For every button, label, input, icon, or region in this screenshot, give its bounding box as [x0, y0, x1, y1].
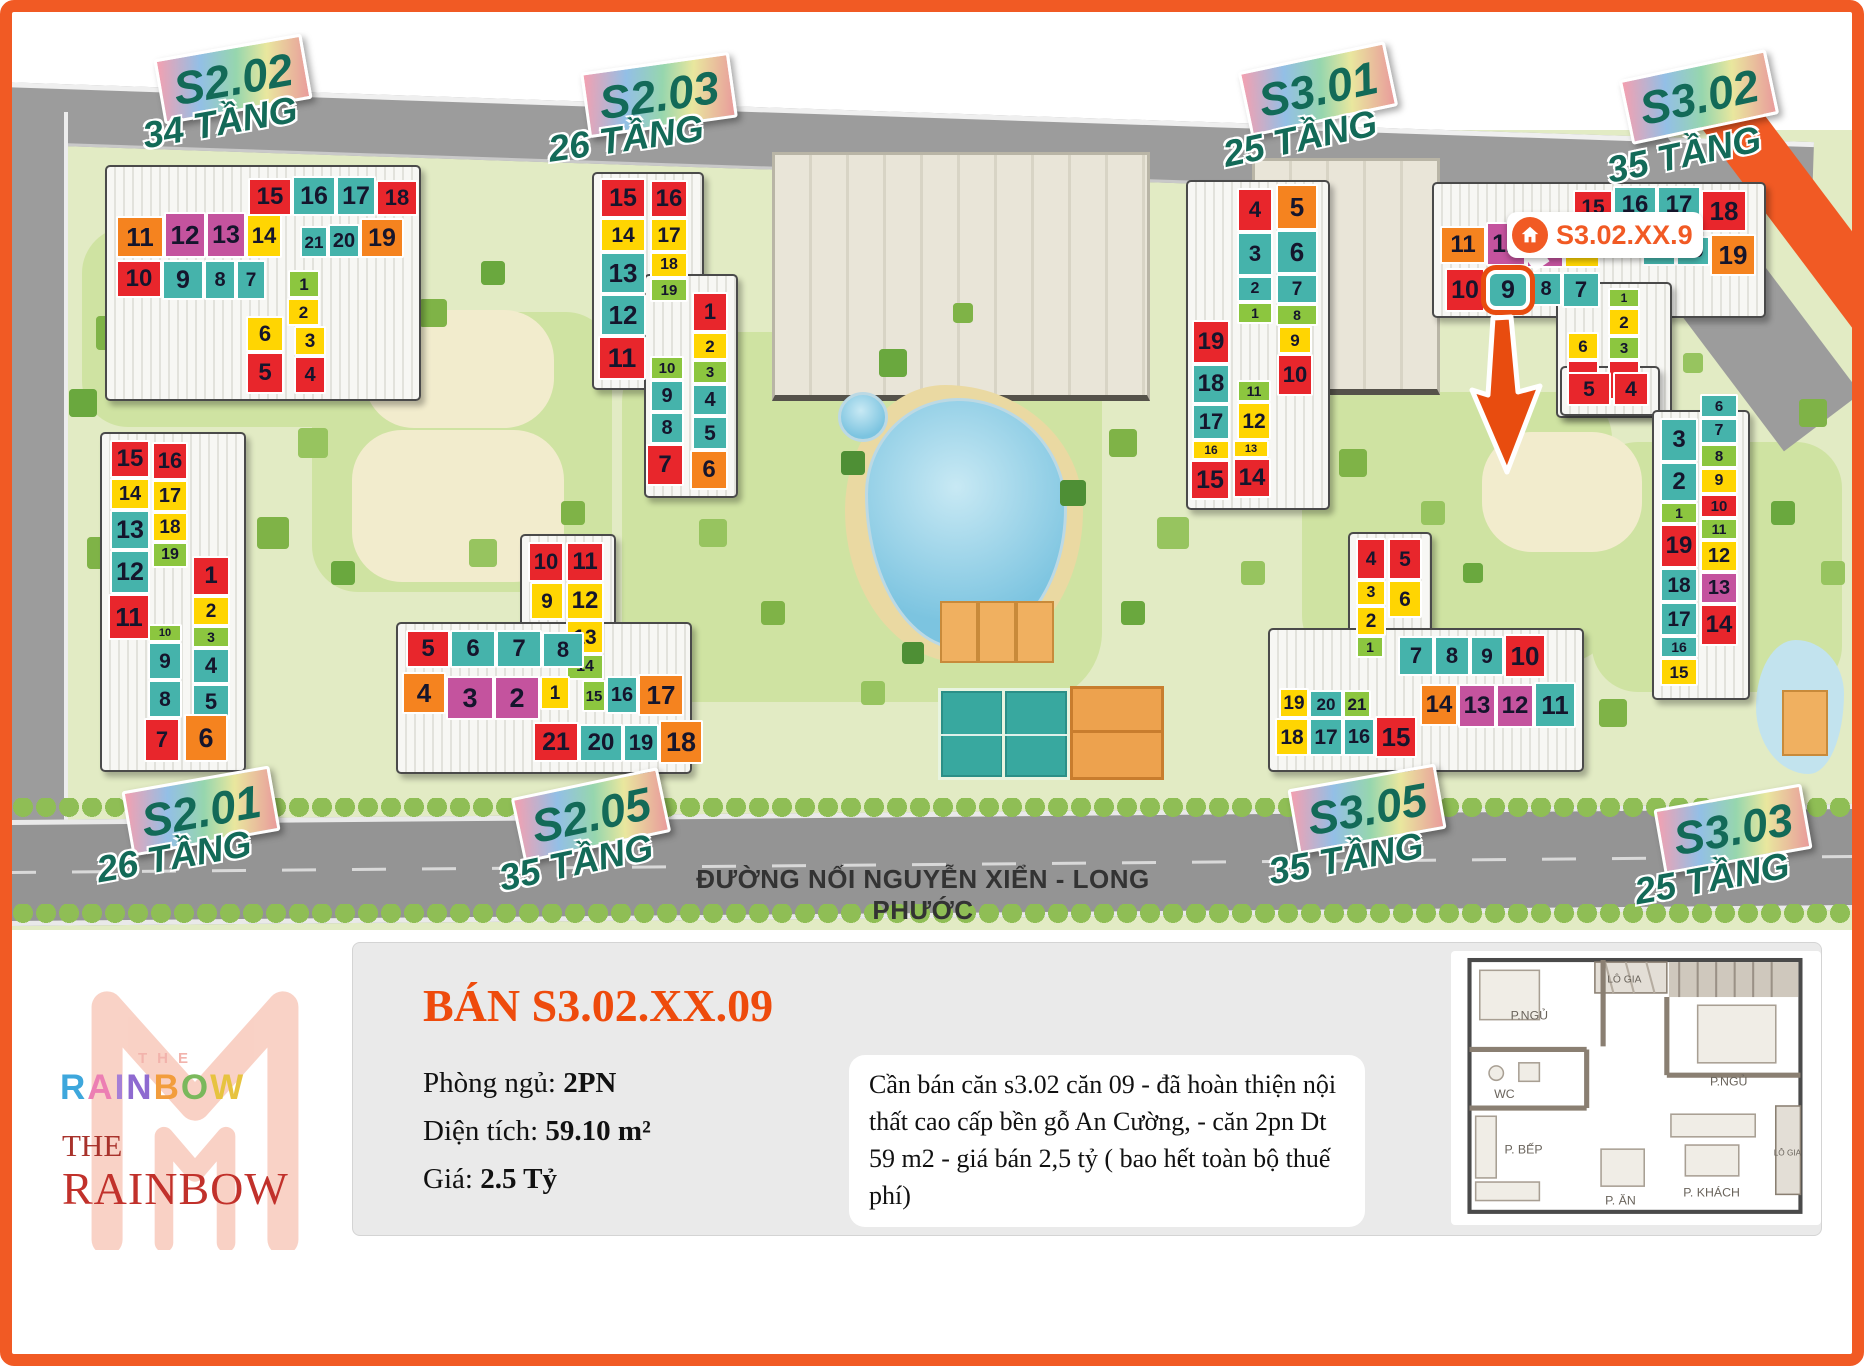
bedrooms-row: Phòng ngủ: 2PN	[423, 1067, 616, 1100]
unit-cell-S3.01-16: 16	[1192, 440, 1230, 460]
logo-rainbow-serif: RAINBOW	[62, 1162, 289, 1215]
building-floors-S2.03: 26 TẦNG	[546, 107, 707, 170]
unit-cell-S2.05-3: 3	[446, 676, 494, 720]
unit-cell-S3.03-12: 12	[1700, 540, 1738, 572]
listing-description: Cần bán căn s3.02 căn 09 - đã hoàn thiện…	[849, 1055, 1365, 1227]
unit-cell-S3.05-19: 19	[1279, 688, 1309, 718]
unit-cell-S3.01-15: 15	[1190, 460, 1230, 500]
unit-cell-S3.02-11: 11	[1440, 226, 1486, 264]
unit-cell-S2.03-1: 1	[692, 292, 728, 332]
unit-cell-S3.05-10: 10	[1504, 634, 1546, 678]
unit-cell-S3.03-16: 16	[1660, 636, 1698, 658]
unit-cell-S2.02-2: 2	[287, 298, 320, 326]
unit-cell-S3.05-8: 8	[1434, 636, 1470, 676]
unit-cell-S3.01-8: 8	[1276, 304, 1318, 326]
unit-cell-S2.01-19: 19	[152, 542, 188, 568]
unit-cell-S2.05-1: 1	[540, 676, 570, 710]
unit-cell-S2.01-2: 2	[192, 596, 230, 626]
unit-cell-S2.01-17: 17	[152, 480, 188, 512]
unit-cell-S2.03-14: 14	[600, 218, 646, 252]
unit-cell-S3.02-1: 1	[1608, 288, 1640, 308]
unit-cell-S3.01-17: 17	[1192, 404, 1230, 440]
unit-cell-S3.01-1: 1	[1237, 302, 1273, 324]
unit-cell-S3.01-14: 14	[1233, 458, 1271, 498]
unit-cell-S3.01-18: 18	[1192, 364, 1230, 404]
unit-cell-S3.03-17: 17	[1660, 602, 1698, 636]
room-label-balcony-top: LÔ GIA	[1607, 973, 1641, 986]
unit-cell-S2.02-11: 11	[116, 216, 164, 258]
unit-cell-S2.05-19: 19	[623, 724, 659, 762]
unit-cell-S2.03-2: 2	[692, 332, 728, 360]
logo-the-small: THE	[138, 1050, 198, 1067]
unit-cell-S2.01-11: 11	[108, 594, 150, 640]
unit-cell-S2.05-8: 8	[542, 632, 584, 668]
unit-cell-S2.01-13: 13	[110, 510, 150, 550]
unit-cell-S3.01-2: 2	[1237, 276, 1273, 302]
unit-cell-S3.05-5: 5	[1388, 538, 1422, 580]
buildings-layer: 151617181112131421201910987126534S2.0234…	[12, 12, 1852, 932]
unit-cell-S3.02-18: 18	[1701, 190, 1747, 232]
unit-cell-S3.02-2: 2	[1608, 308, 1640, 336]
unit-cell-S3.02-3: 3	[1608, 336, 1640, 360]
unit-cell-S2.03-11: 11	[598, 336, 646, 380]
unit-cell-S3.03-7: 7	[1700, 418, 1738, 444]
unit-cell-S3.01-19: 19	[1192, 320, 1230, 364]
unit-cell-S2.01-7: 7	[144, 718, 180, 762]
logo-the-serif: THE	[62, 1128, 122, 1164]
home-icon	[1512, 217, 1548, 253]
unit-cell-S2.03-18: 18	[650, 252, 688, 278]
unit-cell-S3.05-1: 1	[1356, 636, 1384, 658]
unit-cell-S3.01-13: 13	[1233, 440, 1269, 458]
unit-cell-S3.05-14: 14	[1420, 684, 1458, 726]
unit-cell-S3.03-13: 13	[1700, 572, 1738, 604]
unit-cell-S2.05-2: 2	[494, 676, 540, 720]
unit-cell-S3.01-7: 7	[1276, 274, 1318, 304]
room-label-bedroom-right: P.NGỦ	[1710, 1073, 1747, 1088]
unit-cell-S2.03-6: 6	[690, 450, 728, 490]
room-label-dining: P. ĂN	[1605, 1193, 1636, 1208]
unit-cell-S3.01-5: 5	[1276, 184, 1318, 230]
unit-cell-S3.01-10: 10	[1277, 354, 1313, 396]
unit-cell-S2.02-8: 8	[204, 260, 236, 300]
callout-label: S3.02.XX.9	[1556, 220, 1693, 251]
unit-cell-S3.03-19: 19	[1660, 524, 1698, 568]
unit-cell-S2.02-14: 14	[246, 214, 282, 258]
unit-cell-S3.05-18: 18	[1275, 718, 1309, 756]
unit-cell-S2.01-6: 6	[184, 714, 228, 762]
price-row: Giá: 2.5 Tỷ	[423, 1163, 557, 1196]
unit-cell-S3.05-16: 16	[1343, 718, 1375, 756]
unit-cell-S3.02-10: 10	[1445, 268, 1485, 312]
unit-cell-S2.02-5: 5	[246, 352, 284, 394]
unit-cell-S2.02-20: 20	[328, 224, 360, 258]
unit-cell-S2.03-8: 8	[650, 412, 684, 444]
unit-cell-S3.02-6: 6	[1567, 332, 1599, 360]
unit-cell-S2.02-12: 12	[164, 212, 206, 258]
unit-cell-S2.05-17: 17	[638, 674, 684, 716]
unit-cell-S2.03-19: 19	[650, 278, 688, 302]
unit-cell-S2.02-7: 7	[236, 260, 266, 300]
unit-cell-S2.02-17: 17	[336, 176, 376, 216]
site-map: ĐƯỜNG NỐI NGUYỄN XIỂN - LONG PHƯỚC 15161…	[12, 12, 1852, 932]
unit-cell-S3.03-3: 3	[1660, 418, 1698, 462]
brand-logo: THE RAINBOW THE RAINBOW	[60, 950, 350, 1250]
unit-cell-S3.03-4: 4	[1613, 372, 1649, 406]
unit-cell-S2.05-15: 15	[582, 680, 606, 712]
unit-cell-S3.03-8: 8	[1700, 444, 1738, 468]
unit-cell-S2.02-19: 19	[360, 218, 404, 258]
unit-cell-S3.03-15: 15	[1660, 658, 1698, 686]
area-value: 59.10 m²	[545, 1115, 650, 1147]
unit-cell-S3.05-11: 11	[1534, 682, 1576, 728]
unit-cell-S2.03-3: 3	[692, 360, 728, 384]
unit-cell-S3.03-11: 11	[1700, 518, 1738, 540]
unit-cell-S3.01-11: 11	[1237, 380, 1271, 402]
unit-cell-S2.05-6: 6	[450, 630, 496, 668]
unit-cell-S2.02-3: 3	[294, 326, 326, 356]
unit-cell-S3.02-8: 8	[1530, 272, 1562, 306]
room-label-balcony-right: LÔ GIA	[1774, 1147, 1802, 1157]
price-label: Giá:	[423, 1163, 480, 1195]
listing-panel: BÁN S3.02.XX.09 Phòng ngủ: 2PN Diện tích…	[352, 942, 1822, 1236]
area-label: Diện tích:	[423, 1115, 545, 1147]
unit-cell-S2.03-13: 13	[600, 252, 646, 294]
selected-unit-S3.02-9[interactable]: 9	[1486, 270, 1530, 310]
logo-letter: A	[87, 1068, 114, 1107]
page: ĐƯỜNG NỐI NGUYỄN XIỂN - LONG PHƯỚC 15161…	[0, 0, 1864, 1366]
logo-rainbow-colored: RAINBOW	[60, 1068, 245, 1108]
unit-cell-S3.05-9: 9	[1470, 636, 1504, 676]
logo-letter: R	[60, 1068, 87, 1107]
unit-cell-S2.02-1: 1	[288, 270, 320, 298]
unit-cell-S2.05-21: 21	[533, 722, 579, 762]
unit-cell-S3.03-9: 9	[1700, 468, 1738, 494]
logo-letter: B	[154, 1068, 181, 1107]
unit-cell-S3.01-3: 3	[1237, 232, 1273, 276]
floor-plan: P.NGỦ LÔ GIA P.NGỦ WC P. BẾP P. ĂN P. KH…	[1451, 951, 1821, 1225]
unit-cell-S2.01-18: 18	[152, 512, 188, 542]
unit-cell-S2.05-16: 16	[606, 676, 638, 714]
unit-cell-S2.02-15: 15	[248, 178, 292, 216]
unit-cell-S2.05-11: 11	[566, 542, 604, 582]
unit-cell-S3.05-4: 4	[1356, 538, 1386, 580]
price-value: 2.5 Tỷ	[480, 1163, 557, 1195]
unit-cell-S3.02-7: 7	[1562, 272, 1600, 308]
unit-cell-S2.01-8: 8	[148, 680, 182, 718]
unit-cell-S2.05-10: 10	[528, 542, 564, 582]
unit-cell-S3.03-14: 14	[1700, 604, 1738, 646]
unit-cell-S3.03-10: 10	[1700, 494, 1738, 518]
unit-cell-S2.05-20: 20	[579, 724, 623, 762]
unit-cell-S2.03-7: 7	[646, 444, 684, 486]
unit-cell-S3.05-7: 7	[1398, 636, 1434, 676]
bedrooms-label: Phòng ngủ:	[423, 1067, 563, 1099]
room-label-living: P. KHÁCH	[1683, 1184, 1740, 1199]
unit-cell-S3.05-12: 12	[1496, 684, 1534, 728]
unit-cell-S3.01-12: 12	[1237, 402, 1271, 440]
unit-cell-S2.05-12: 12	[566, 582, 604, 620]
room-label-bedroom-top: P.NGỦ	[1511, 1008, 1548, 1023]
unit-cell-S3.05-13: 13	[1458, 684, 1496, 728]
unit-cell-S2.02-18: 18	[376, 180, 418, 216]
unit-cell-S2.01-3: 3	[192, 626, 230, 648]
unit-cell-S2.01-14: 14	[110, 478, 150, 510]
unit-cell-S3.01-9: 9	[1278, 326, 1312, 354]
map-pin-callout[interactable]: S3.02.XX.9	[1507, 212, 1703, 258]
unit-cell-S2.05-18: 18	[659, 720, 703, 764]
unit-cell-S3.01-6: 6	[1276, 230, 1318, 274]
unit-cell-S2.01-9: 9	[148, 642, 182, 680]
unit-cell-S2.02-4: 4	[294, 356, 326, 394]
logo-letter: W	[210, 1068, 245, 1107]
unit-cell-S2.03-4: 4	[692, 384, 728, 416]
unit-cell-S3.05-3: 3	[1356, 580, 1386, 606]
hedge-row	[12, 798, 1852, 818]
unit-cell-S3.05-21: 21	[1343, 690, 1371, 718]
unit-cell-S2.01-12: 12	[110, 550, 150, 594]
unit-cell-S2.01-1: 1	[192, 556, 230, 596]
unit-cell-S2.03-17: 17	[650, 218, 688, 252]
unit-cell-S3.05-6: 6	[1388, 580, 1422, 618]
unit-cell-S2.05-5: 5	[406, 630, 450, 668]
unit-cell-S3.03-5: 5	[1567, 372, 1611, 406]
logo-letter: O	[181, 1068, 210, 1107]
unit-cell-S3.03-18: 18	[1660, 568, 1698, 602]
area-row: Diện tích: 59.10 m²	[423, 1115, 651, 1148]
unit-cell-S2.03-10: 10	[650, 356, 684, 380]
bedrooms-value: 2PN	[563, 1067, 616, 1099]
unit-cell-S2.01-4: 4	[192, 648, 230, 684]
room-label-wc: WC	[1494, 1087, 1515, 1101]
unit-cell-S2.02-13: 13	[206, 212, 246, 258]
unit-cell-S2.03-12: 12	[600, 294, 646, 336]
unit-cell-S2.05-7: 7	[496, 630, 542, 668]
unit-cell-S3.02-19: 19	[1710, 234, 1756, 276]
unit-cell-S2.03-9: 9	[650, 380, 684, 412]
unit-cell-S2.01-10: 10	[148, 624, 182, 642]
unit-cell-S3.03-2: 2	[1660, 462, 1698, 502]
unit-cell-S2.05-9: 9	[530, 582, 564, 620]
unit-cell-S2.01-16: 16	[152, 442, 188, 480]
logo-letter: I	[115, 1068, 127, 1107]
unit-cell-S3.05-17: 17	[1309, 718, 1343, 756]
unit-cell-S3.01-4: 4	[1237, 188, 1273, 232]
unit-cell-S2.03-16: 16	[650, 180, 688, 218]
unit-cell-S2.02-6: 6	[246, 316, 284, 352]
selection-arrow	[1458, 312, 1558, 480]
listing-title: BÁN S3.02.XX.09	[423, 979, 773, 1032]
unit-cell-S2.05-4: 4	[402, 672, 446, 714]
unit-cell-S2.03-5: 5	[692, 416, 728, 450]
unit-cell-S3.05-20: 20	[1309, 690, 1343, 718]
unit-cell-S2.02-10: 10	[116, 260, 162, 298]
unit-cell-S3.03-1: 1	[1660, 502, 1698, 524]
road-name: ĐƯỜNG NỐI NGUYỄN XIỂN - LONG PHƯỚC	[663, 864, 1183, 926]
unit-cell-S3.03-6: 6	[1700, 394, 1738, 418]
unit-cell-S2.01-15: 15	[110, 440, 150, 478]
unit-cell-S2.02-9: 9	[162, 260, 204, 300]
unit-cell-S3.05-2: 2	[1356, 606, 1386, 636]
unit-cell-S2.03-15: 15	[600, 178, 646, 218]
room-label-kitchen: P. BẾP	[1504, 1141, 1542, 1156]
logo-letter: N	[126, 1068, 153, 1107]
unit-cell-S3.05-15: 15	[1375, 716, 1417, 758]
unit-cell-S2.02-21: 21	[300, 226, 328, 258]
unit-cell-S2.02-16: 16	[292, 176, 336, 216]
